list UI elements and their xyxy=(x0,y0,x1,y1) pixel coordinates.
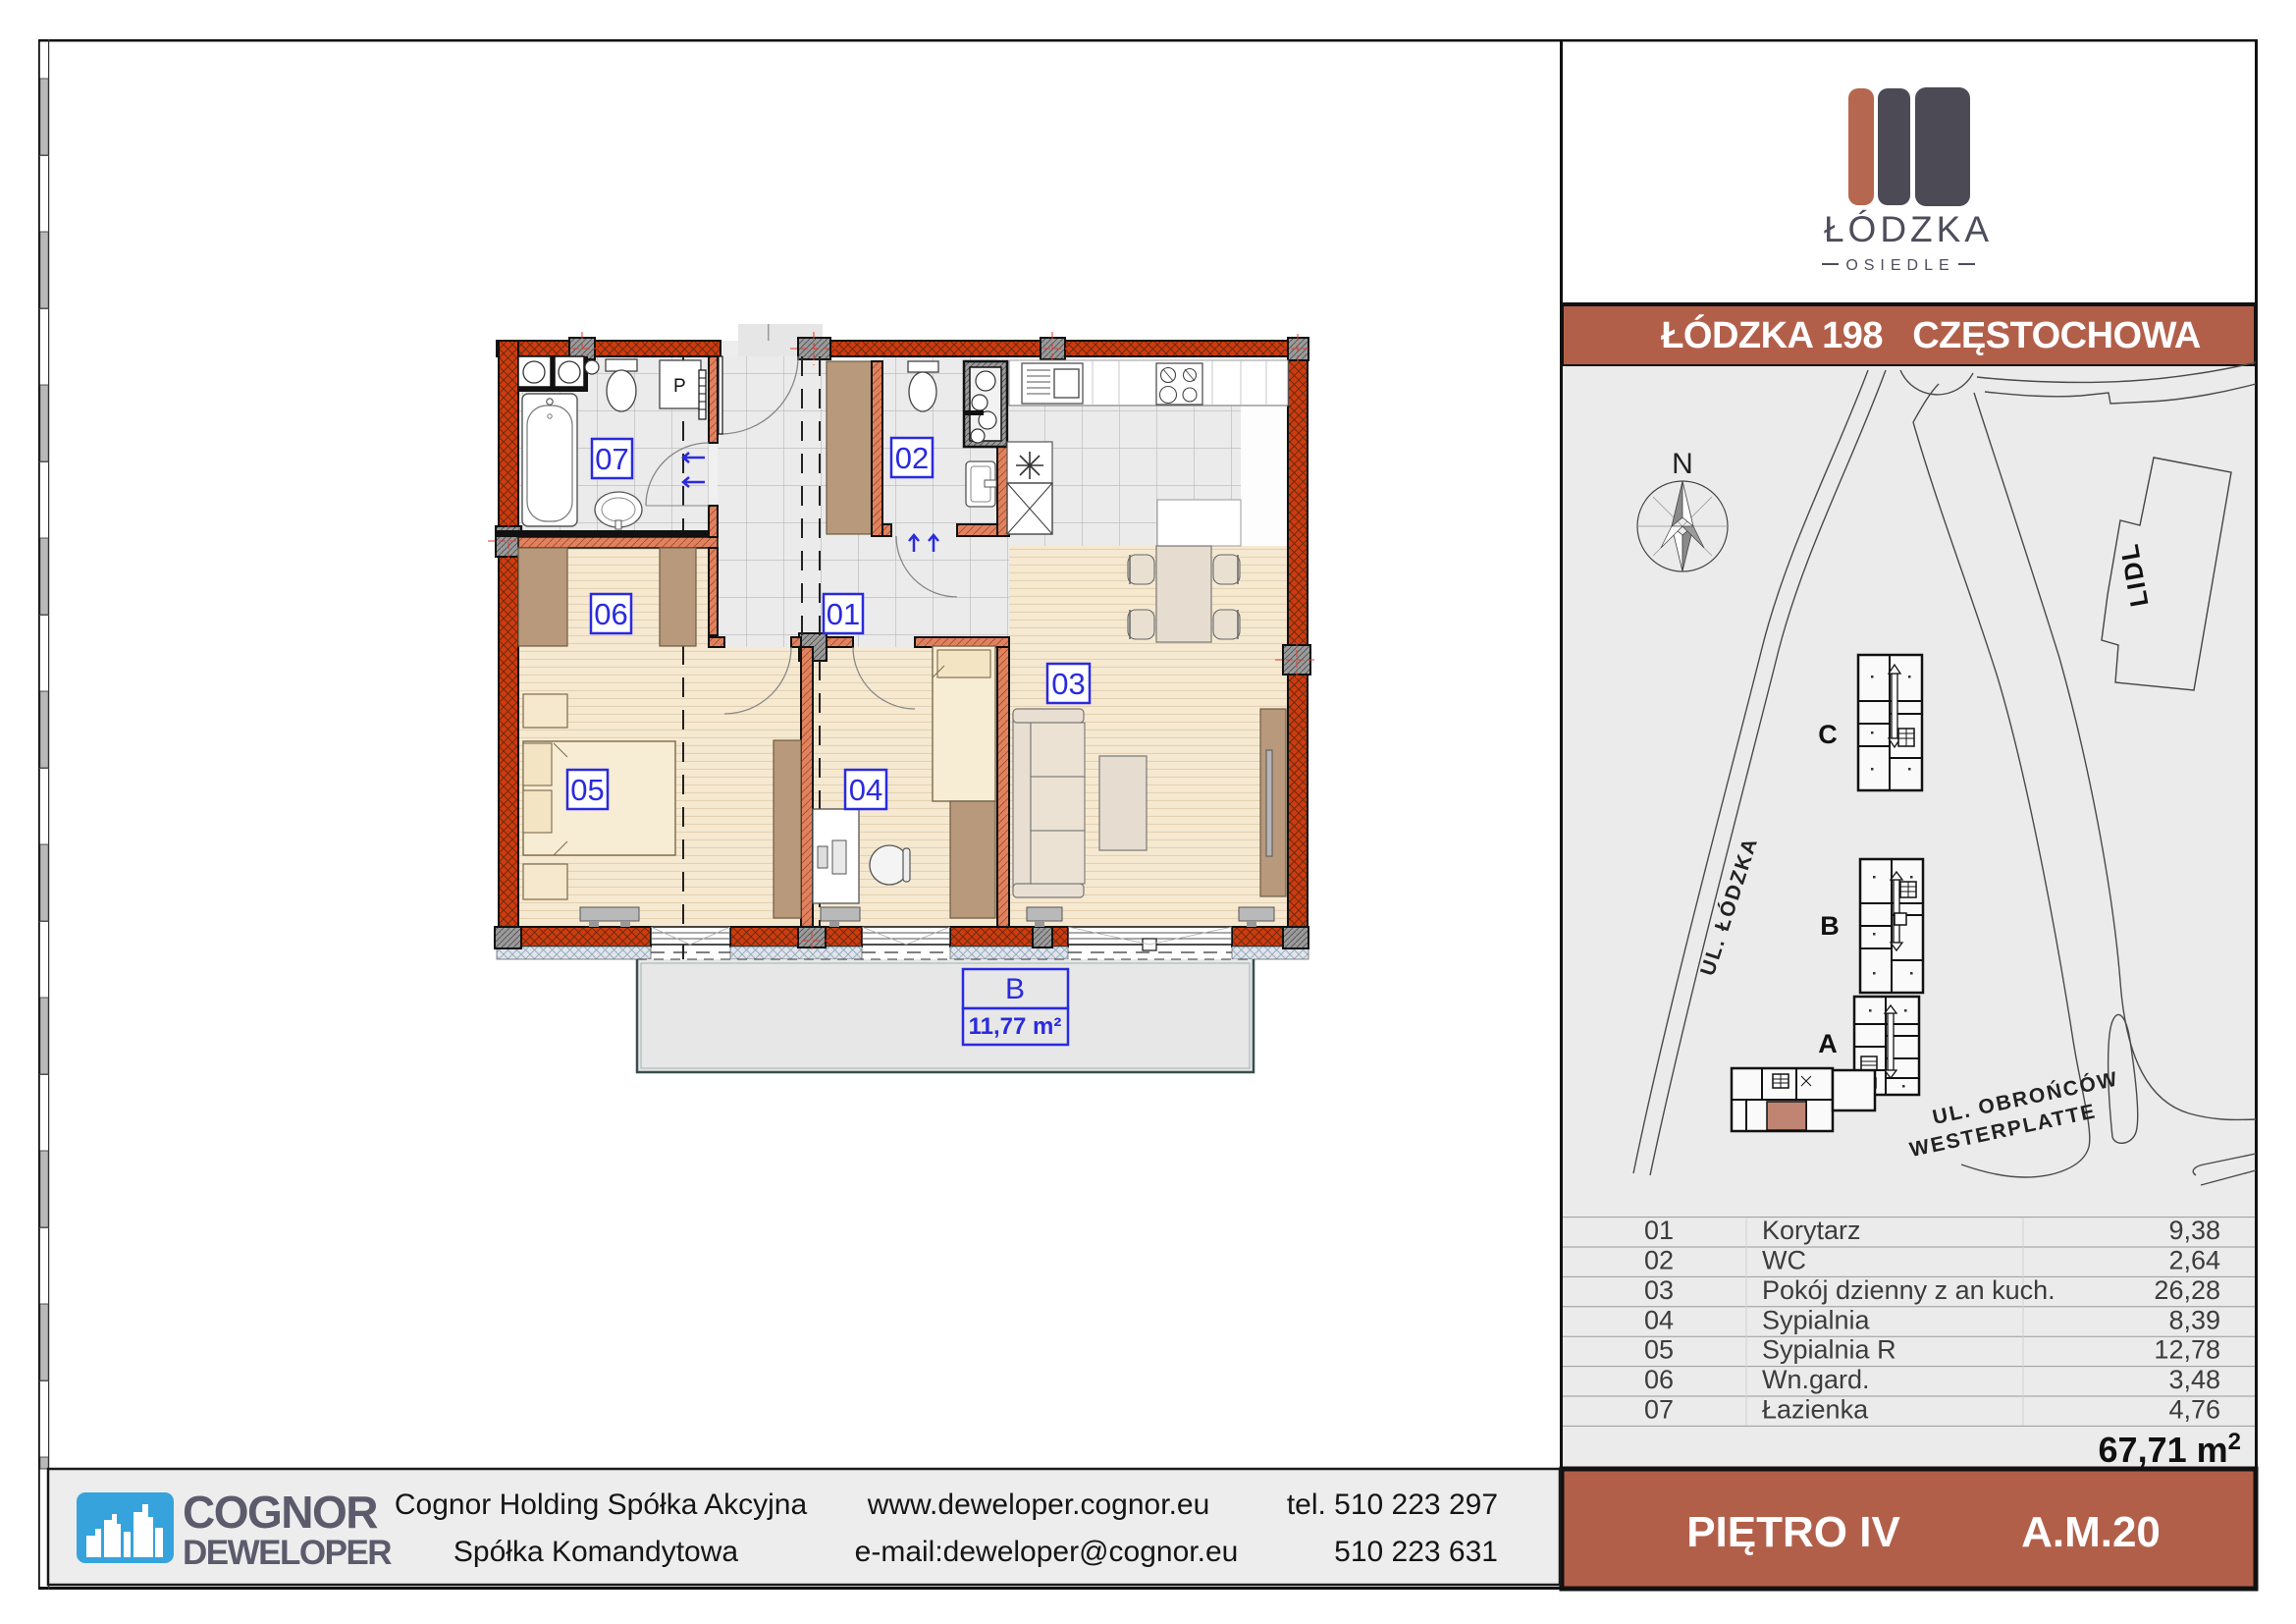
svg-text:03: 03 xyxy=(1644,1275,1674,1305)
svg-text:Spółka Komandytowa: Spółka Komandytowa xyxy=(454,1536,738,1568)
svg-text:01: 01 xyxy=(827,597,860,631)
svg-text:02: 02 xyxy=(895,441,929,475)
svg-text:Sypialnia R: Sypialnia R xyxy=(1762,1335,1896,1365)
svg-text:Korytarz: Korytarz xyxy=(1762,1216,1861,1245)
svg-text:4,76: 4,76 xyxy=(2168,1395,2220,1425)
svg-text:Pokój dzienny z an kuch.: Pokój dzienny z an kuch. xyxy=(1762,1275,2056,1305)
svg-text:tel. 510 223 297: tel. 510 223 297 xyxy=(1287,1489,1498,1521)
svg-text:26,28: 26,28 xyxy=(2154,1275,2220,1305)
svg-text:05: 05 xyxy=(1644,1335,1674,1365)
svg-text:9,38: 9,38 xyxy=(2168,1216,2220,1245)
svg-text:www.deweloper.cognor.eu: www.deweloper.cognor.eu xyxy=(867,1489,1210,1521)
svg-text:DEWELOPER: DEWELOPER xyxy=(183,1534,392,1572)
svg-text:A.M.20: A.M.20 xyxy=(2021,1508,2161,1556)
svg-text:8,39: 8,39 xyxy=(2168,1305,2220,1334)
svg-text:Wn.gard.: Wn.gard. xyxy=(1762,1365,1870,1394)
svg-text:07: 07 xyxy=(595,442,628,476)
svg-text:OSIEDLE: OSIEDLE xyxy=(1845,257,1954,274)
svg-text:P: P xyxy=(673,376,686,397)
svg-text:PIĘTRO IV: PIĘTRO IV xyxy=(1686,1508,1900,1556)
svg-text:06: 06 xyxy=(1644,1365,1674,1394)
svg-text:67,71 m2: 67,71 m2 xyxy=(2099,1429,2241,1470)
svg-text:C: C xyxy=(1818,720,1838,749)
svg-text:B: B xyxy=(1005,973,1025,1005)
svg-text:ŁÓDZKA: ŁÓDZKA xyxy=(1824,209,1993,249)
svg-text:07: 07 xyxy=(1644,1395,1674,1425)
svg-text:Cognor Holding Spółka Akcyjna: Cognor Holding Spółka Akcyjna xyxy=(395,1489,808,1521)
svg-text:04: 04 xyxy=(1644,1305,1674,1334)
svg-text:05: 05 xyxy=(570,773,604,807)
svg-text:COGNOR: COGNOR xyxy=(183,1487,378,1538)
svg-text:Sypialnia: Sypialnia xyxy=(1762,1305,1871,1334)
svg-text:A: A xyxy=(1818,1029,1838,1058)
svg-text:12,78: 12,78 xyxy=(2154,1335,2220,1365)
svg-text:2,64: 2,64 xyxy=(2168,1246,2220,1275)
svg-text:510 223 631: 510 223 631 xyxy=(1334,1536,1498,1568)
svg-text:Łazienka: Łazienka xyxy=(1762,1395,1869,1425)
svg-text:WC: WC xyxy=(1762,1246,1806,1275)
svg-text:03: 03 xyxy=(1051,667,1085,701)
svg-text:06: 06 xyxy=(594,597,627,631)
svg-text:3,48: 3,48 xyxy=(2168,1365,2220,1394)
svg-text:ŁÓDZKA 198 CZĘSTOCHOWA: ŁÓDZKA 198 CZĘSTOCHOWA xyxy=(1661,313,2201,356)
svg-text:02: 02 xyxy=(1644,1246,1674,1275)
svg-text:11,77 m²: 11,77 m² xyxy=(969,1013,1062,1040)
svg-text:e-mail:deweloper@cognor.eu: e-mail:deweloper@cognor.eu xyxy=(855,1536,1239,1568)
svg-text:04: 04 xyxy=(849,773,882,807)
svg-text:N: N xyxy=(1672,448,1693,480)
svg-text:01: 01 xyxy=(1644,1216,1674,1245)
svg-text:B: B xyxy=(1820,911,1840,941)
